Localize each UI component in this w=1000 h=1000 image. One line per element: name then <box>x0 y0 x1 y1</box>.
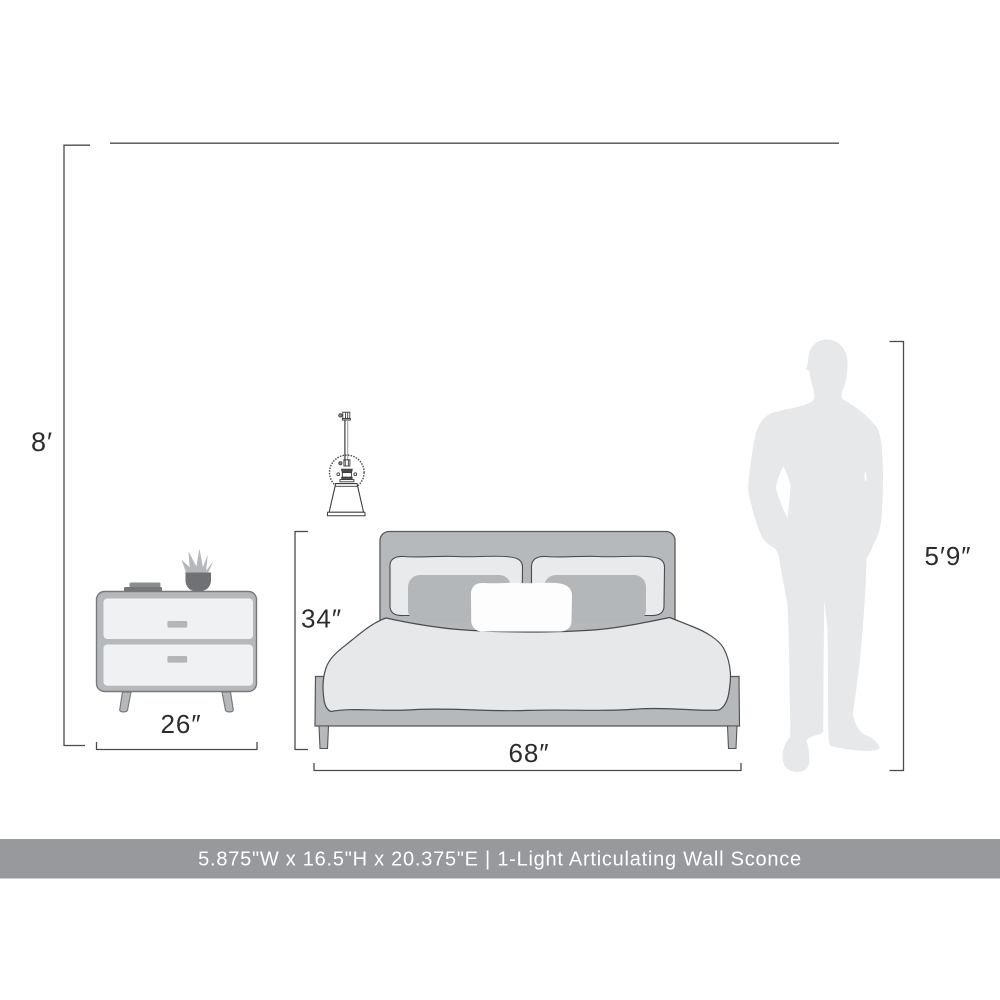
svg-text:34″: 34″ <box>301 604 342 634</box>
svg-text:68″: 68″ <box>508 738 549 768</box>
svg-text:26″: 26″ <box>160 709 201 739</box>
svg-text:5′9″: 5′9″ <box>925 541 972 571</box>
svg-text:5.875"W x 16.5"H x 20.375"E |: 5.875"W x 16.5"H x 20.375"E | 1-Light Ar… <box>198 849 802 871</box>
svg-text:8′: 8′ <box>31 427 53 457</box>
